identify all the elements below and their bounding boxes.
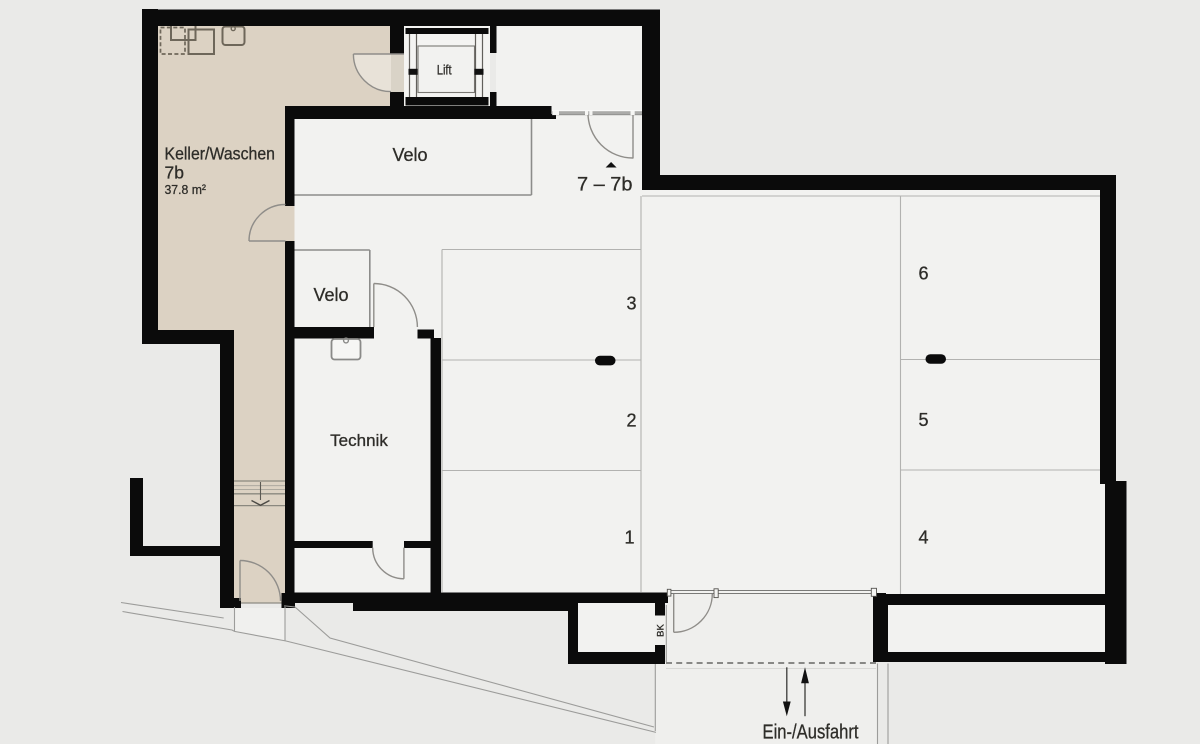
- svg-text:Technik: Technik: [330, 431, 388, 450]
- svg-text:Lift: Lift: [437, 62, 452, 78]
- svg-text:Ein-/Ausfahrt: Ein-/Ausfahrt: [763, 722, 859, 744]
- svg-text:1: 1: [624, 528, 634, 548]
- svg-text:6: 6: [918, 264, 928, 284]
- svg-text:Velo: Velo: [392, 145, 427, 165]
- svg-text:Velo: Velo: [313, 285, 348, 305]
- svg-text:3: 3: [626, 294, 636, 314]
- svg-text:7b: 7b: [165, 163, 184, 183]
- svg-text:4: 4: [918, 528, 928, 548]
- svg-text:7 – 7b: 7 – 7b: [577, 174, 633, 196]
- svg-text:37.8 m²: 37.8 m²: [165, 182, 207, 197]
- svg-text:2: 2: [626, 411, 636, 431]
- svg-text:BK: BK: [656, 624, 667, 637]
- svg-text:Keller/Waschen: Keller/Waschen: [165, 144, 276, 164]
- svg-text:5: 5: [918, 410, 928, 430]
